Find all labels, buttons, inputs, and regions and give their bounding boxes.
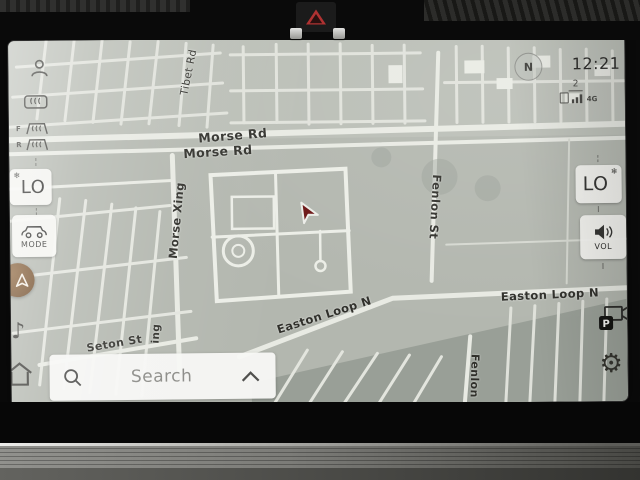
screen-mount-clip (333, 28, 345, 39)
car-icon (20, 223, 48, 238)
profile-icon[interactable] (28, 57, 50, 83)
search-icon (62, 366, 84, 388)
right-temperature-lo-button[interactable]: ❄ LO (575, 165, 621, 203)
chevron-up-icon[interactable] (240, 369, 262, 382)
speaker-icon (592, 223, 614, 241)
compass-indicator[interactable]: N (514, 53, 542, 81)
settings-gear-icon[interactable]: ⚙ (599, 349, 623, 379)
home-icon[interactable] (8, 361, 34, 391)
search-placeholder: Search (84, 366, 240, 388)
profile-count: 2 (569, 79, 583, 91)
defrost-rear-letter: R (16, 141, 21, 149)
divider-dash (602, 263, 603, 269)
snowflake-icon: ❄ (13, 172, 20, 180)
left-temperature-lo-button[interactable]: ❄ LO (9, 169, 51, 205)
divider-dash (598, 206, 599, 212)
right-temperature-value: LO (583, 173, 615, 195)
street-label-fenlon-partial: Fenlon (468, 354, 482, 398)
music-note-icon[interactable]: ♪ (11, 319, 25, 344)
snowflake-icon: ❄ (611, 168, 618, 176)
clock: 12:21 (554, 54, 620, 74)
network-label: 4G (587, 95, 598, 103)
rear-defrost-icon[interactable] (23, 93, 49, 115)
vol-label: VOL (594, 242, 612, 251)
windshield-defrost-icon[interactable] (25, 137, 49, 156)
divider-dash (597, 155, 598, 162)
divider-dash (35, 158, 36, 166)
navigation-arrow-icon (12, 271, 31, 290)
street-label-morse-xing-partial: ing (149, 323, 162, 343)
infotainment-screen: Morse Rd Morse Rd Morse Xing Tibet Rd Fe… (8, 35, 628, 407)
volume-button[interactable]: VOL (580, 215, 626, 259)
hazard-light-button[interactable] (296, 2, 336, 32)
dashboard-bottom-bezel (0, 402, 640, 444)
status-icons: 4G (560, 92, 598, 103)
left-vent (0, 0, 190, 12)
defrost-front-letter: F (16, 125, 21, 133)
signal-bars-icon (572, 94, 584, 103)
right-vent (424, 0, 640, 21)
phone-icon (560, 92, 569, 103)
drive-mode-button[interactable]: MODE (12, 215, 56, 257)
screen-mount-clip (290, 28, 302, 39)
trim-band (0, 446, 640, 468)
trim-base (0, 468, 640, 480)
divider-dash (36, 208, 37, 215)
hazard-triangle-icon (305, 8, 327, 26)
mode-label: MODE (21, 239, 48, 248)
parking-camera-icon[interactable]: P (593, 301, 628, 341)
parking-letter: P (602, 319, 609, 330)
search-bar[interactable]: Search (49, 352, 275, 400)
